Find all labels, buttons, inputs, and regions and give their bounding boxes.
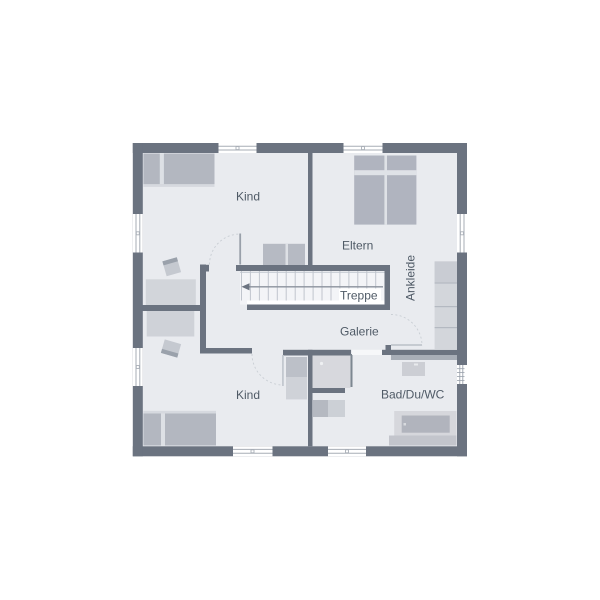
svg-text:Kind: Kind <box>236 388 260 402</box>
svg-text:Treppe: Treppe <box>340 289 378 303</box>
svg-text:Kind: Kind <box>236 190 260 204</box>
svg-text:Galerie: Galerie <box>340 325 379 339</box>
svg-text:Ankleide: Ankleide <box>404 255 418 301</box>
svg-text:Eltern: Eltern <box>342 239 373 253</box>
svg-text:Bad/Du/WC: Bad/Du/WC <box>381 388 445 402</box>
